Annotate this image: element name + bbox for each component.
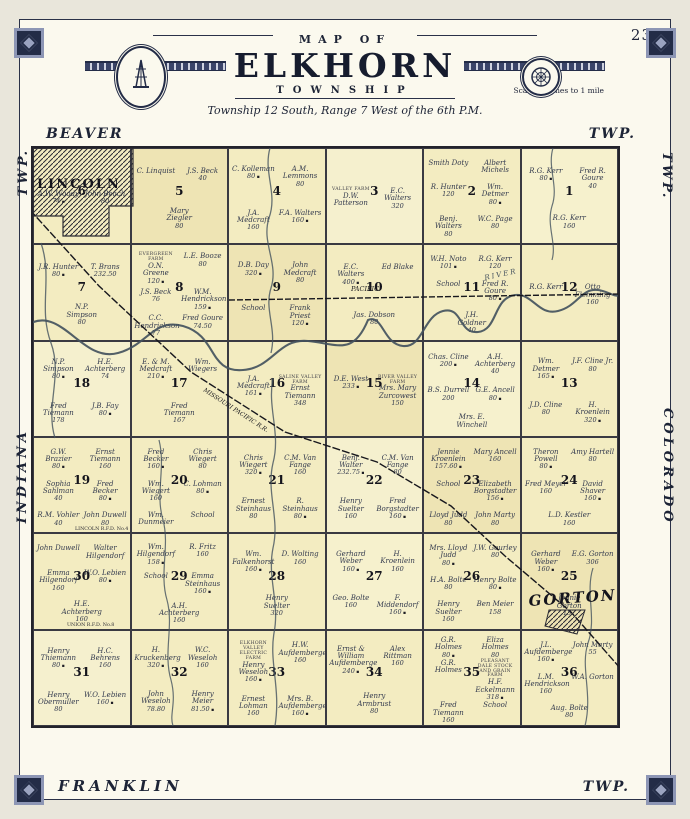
section-18: 18N.P. Simpson80H.E. Achterberg74Fred Ti… bbox=[33, 341, 131, 437]
parcel-acreage: 156 bbox=[474, 495, 517, 503]
owner-name: N.P. Simpson bbox=[37, 359, 80, 374]
parcel-acreage: 80 bbox=[474, 295, 517, 303]
parcel-list: R.G. KerrOtto Flemming160 bbox=[523, 251, 617, 338]
owner-name: Wm. Detmer bbox=[474, 184, 517, 199]
plat-map-page: 23 MAP OF ELKHORN TOW bbox=[0, 0, 690, 819]
owner-name: N.P. Simpson bbox=[60, 304, 103, 319]
owner-name: G.W. Brazier bbox=[37, 449, 80, 464]
parcel-acreage: 80 bbox=[524, 463, 567, 471]
parcel-list: Mrs. Lloyd Judd80J.W. Gourley80H.A. Bolt… bbox=[425, 540, 519, 627]
parcel: C. Linquist bbox=[134, 168, 177, 182]
parcel: F.A. Walters160 bbox=[279, 210, 322, 232]
parcel-acreage: 80 bbox=[474, 520, 517, 527]
parcel-list: Jennie Kroenlein157.60Mary Ancell160Scho… bbox=[425, 444, 519, 531]
parcel-list: J.A. Medcraft161SALINE VALLEY FARMErnst … bbox=[230, 348, 324, 435]
owner-name: H.C. Behrens bbox=[84, 648, 127, 663]
parcel-acreage: 158 bbox=[134, 559, 177, 567]
parcel-acreage: 80 bbox=[37, 463, 80, 471]
parcel-acreage: 80 bbox=[279, 277, 322, 284]
parcel-acreage: 80 bbox=[571, 456, 614, 463]
adjacent-township-indiana: INDIANA bbox=[15, 428, 30, 523]
parcel: C. Kolleman80 bbox=[232, 166, 275, 188]
parcel: Henry Suelter160 bbox=[427, 601, 470, 623]
parcel: Mrs. E. Winchell bbox=[450, 414, 493, 429]
section-15: 15D.E. West233RIVER VALLEY FARMMrs. Mary… bbox=[326, 341, 424, 437]
owner-name: J.H. Goldner bbox=[450, 312, 493, 327]
parcel-list: Chris Wiegert320C.M. Van Fange160Ernest … bbox=[230, 444, 324, 531]
section-number: 28 bbox=[268, 569, 285, 583]
owner-name: Benj. Walters bbox=[427, 216, 470, 231]
parcel-acreage: 80 bbox=[427, 520, 470, 527]
parcel-list: Wm. Detmer165J.F. Cline Jr.80J.D. Cline8… bbox=[523, 348, 617, 435]
owner-name: H. Kruckenberg bbox=[134, 647, 177, 662]
owner-name: Benj. Walter bbox=[329, 455, 372, 470]
parcel-acreage: 80 bbox=[353, 319, 396, 326]
parcel-acreage: 157.60 bbox=[427, 463, 470, 471]
owner-name: Henry Armbrust bbox=[353, 693, 396, 708]
parcel: Lloyd Judd80 bbox=[427, 512, 470, 526]
owner-name: Jennie Kroenlein bbox=[427, 449, 470, 464]
parcel-acreage: 80 bbox=[37, 706, 80, 713]
owner-name: D.W. Patterson bbox=[329, 193, 372, 208]
section-30: 30John DuwellWalter HilgendorfEmma Hilge… bbox=[33, 533, 131, 629]
owner-name: Ernest Steinhaus bbox=[232, 498, 275, 513]
section-20: 20Fred Becker160Chris Wiegert80Wm. Wiege… bbox=[131, 437, 229, 533]
parcel-acreage: 160 bbox=[376, 609, 419, 617]
parcel-list: John DuwellWalter HilgendorfEmma Hilgend… bbox=[35, 540, 129, 627]
owner-name: Mrs. E. Winchell bbox=[450, 414, 493, 429]
owner-name: Wm. Wiegers bbox=[181, 359, 224, 374]
owner-name: Henry Suelter bbox=[255, 595, 298, 610]
owner-name: E.C. Walters bbox=[329, 264, 372, 279]
parcel: John Weseloh78.80 bbox=[134, 691, 177, 713]
parcel: Chris Wiegert80 bbox=[181, 449, 224, 471]
parcel: D.B. Day320 bbox=[232, 262, 275, 284]
parcel-acreage: 80 bbox=[232, 513, 275, 520]
section-26: 26Mrs. Lloyd Judd80J.W. Gourley80H.A. Bo… bbox=[423, 533, 521, 629]
parcel-acreage: 80 bbox=[181, 261, 224, 268]
section-number: 26 bbox=[463, 569, 480, 583]
parcel-acreage: 160 bbox=[134, 495, 177, 502]
parcel-acreage: 80 bbox=[84, 495, 127, 503]
parcel: Amy Hartell80 bbox=[571, 449, 614, 471]
parcel-acreage: 120 bbox=[279, 320, 322, 328]
parcel-acreage: 200 bbox=[427, 395, 470, 402]
parcel-acreage: 120 bbox=[474, 263, 517, 270]
parcel: Mary Ancell160 bbox=[474, 449, 517, 471]
parcel: N.P. Simpson80 bbox=[60, 304, 103, 326]
owner-name: John Medcraft bbox=[279, 262, 322, 277]
section-number: 2 bbox=[468, 184, 476, 198]
parcel-acreage: 80 bbox=[60, 319, 103, 326]
section-12: 12R.G. KerrOtto Flemming160 bbox=[521, 244, 619, 340]
section-number: 3 bbox=[370, 184, 378, 198]
township-map: 6A.W. Woody74John Beach805C. LinquistJ.S… bbox=[33, 148, 618, 726]
parcel: Geo. Bolte160 bbox=[329, 595, 372, 617]
parcel-acreage: 80 bbox=[279, 513, 322, 521]
section-number: 14 bbox=[463, 376, 480, 390]
owner-name: H.F. Eckelmann bbox=[474, 679, 517, 694]
parcel-list: Gerhard Weber160H. Kroenlein160Geo. Bolt… bbox=[328, 540, 422, 627]
parcel-acreage: 40 bbox=[474, 368, 517, 375]
owner-name: Henry Suelter bbox=[427, 601, 470, 616]
parcel-acreage: 348 bbox=[279, 400, 322, 407]
parcel-list: E.C. Walters400Ed BlakeJas. Dobson80 bbox=[328, 251, 422, 338]
parcel: L.D. Kestler160 bbox=[548, 512, 591, 526]
parcel-acreage: 80 bbox=[524, 175, 567, 183]
owner-name: Albert Michels bbox=[474, 160, 517, 175]
owner-name: Fred Becker bbox=[134, 449, 177, 464]
parcel: F. Middendorf160 bbox=[376, 595, 419, 617]
parcel-acreage: 160 bbox=[158, 617, 201, 624]
owner-name: J.L. Aufdemberge bbox=[524, 642, 567, 657]
owner-name: Henry Meier bbox=[181, 691, 224, 706]
parcel: School bbox=[232, 305, 275, 327]
section-33: 33ELKHORN VALLEY ELECTRIC FARMHenry Wese… bbox=[228, 630, 326, 726]
section-36: 36J.L. Aufdemberge160John Marty55L.M. He… bbox=[521, 630, 619, 726]
section-number: 11 bbox=[463, 280, 480, 294]
section-8: 8EVERGREEN FARMO.N. Greene120L.E. Booze8… bbox=[131, 244, 229, 340]
section-number: 36 bbox=[561, 665, 578, 679]
section-number: 32 bbox=[171, 665, 188, 679]
section-13: 13Wm. Detmer165J.F. Cline Jr.80J.D. Clin… bbox=[521, 341, 619, 437]
section-2: 2Smith DotyAlbert MichelsR. Hunter120Wm.… bbox=[423, 148, 521, 244]
owner-name: Mrs. Lloyd Judd bbox=[427, 545, 470, 560]
section-1: 1R.G. Kerr80Fred R. Goure40R.G. Kerr160 bbox=[521, 148, 619, 244]
parcel-acreage: 80 bbox=[353, 708, 396, 715]
section-27: 27Gerhard Weber160H. Kroenlein160Geo. Bo… bbox=[326, 533, 424, 629]
owner-name: H. Kroenlein bbox=[376, 551, 419, 566]
parcel-acreage: 80 bbox=[571, 366, 614, 373]
parcel-acreage: 80 bbox=[474, 395, 517, 403]
parcel: Ernest Lohman160 bbox=[232, 696, 275, 718]
section-grid: 6A.W. Woody74John Beach805C. LinquistJ.S… bbox=[33, 148, 618, 726]
parcel: Walter Hilgendorf bbox=[84, 545, 127, 560]
section-number: 33 bbox=[268, 665, 285, 679]
parcel-acreage: 101 bbox=[427, 263, 470, 271]
parcel-acreage: 120 bbox=[427, 191, 470, 198]
parcel: J.W. Gourley80 bbox=[474, 545, 517, 567]
owner-name: Wm. Detmer bbox=[524, 358, 567, 373]
parcel-acreage: 80 bbox=[524, 409, 567, 416]
parcel-list: C. LinquistJ.S. Beck40Mary Ziegler80 bbox=[133, 155, 227, 242]
parcel: R.G. Kerr120 bbox=[474, 256, 517, 271]
parcel: Fred Tiemann178 bbox=[37, 403, 80, 425]
parcel: John Marty55 bbox=[571, 642, 614, 664]
parcel: J.R. Hunter80 bbox=[37, 264, 80, 279]
parcel: J.S. Beck76 bbox=[134, 289, 177, 311]
parcel-acreage: 77 bbox=[134, 330, 177, 337]
owner-name: C.C. Hendrickson bbox=[134, 315, 177, 330]
parcel: Fred Borgstadter160 bbox=[376, 498, 419, 520]
border-corner-ornament bbox=[14, 775, 44, 805]
parcel-list: Theron Powell80Amy Hartell80Fred Meyer16… bbox=[523, 444, 617, 531]
parcel-acreage: 80 bbox=[474, 652, 517, 659]
section-number: 1 bbox=[565, 184, 573, 198]
section-number: 23 bbox=[463, 473, 480, 487]
owner-name: A.H. Achterberg bbox=[474, 354, 517, 369]
parcel: Ben Meier158 bbox=[474, 601, 517, 623]
parcel-acreage: 40 bbox=[37, 520, 80, 527]
parcel: Jennie Kroenlein157.60 bbox=[427, 449, 470, 471]
section-16: 16J.A. Medcraft161SALINE VALLEY FARMErns… bbox=[228, 341, 326, 437]
section-number: 24 bbox=[561, 473, 578, 487]
parcel: Wm. Hilgendorf158 bbox=[134, 544, 177, 566]
section-number: 20 bbox=[171, 473, 188, 487]
parcel-list: Henry Thiemann80H.C. Behrens160Henry Obe… bbox=[35, 637, 129, 724]
parcel-acreage: 160 bbox=[329, 602, 372, 609]
parcel: Ernst Tiemann160 bbox=[84, 449, 127, 471]
seal-tower-ornament bbox=[116, 46, 166, 108]
parcel: John Duwell bbox=[37, 545, 80, 560]
section-number: 35 bbox=[463, 665, 480, 679]
owner-name: C.M. Van Fange bbox=[376, 455, 419, 470]
parcel: A.H. Achterberg40 bbox=[474, 354, 517, 376]
parcel: John Medcraft80 bbox=[279, 262, 322, 284]
parcel-acreage: 74.50 bbox=[181, 323, 224, 330]
section-number: 16 bbox=[268, 376, 285, 390]
parcel-acreage: 160 bbox=[181, 588, 224, 596]
legal-description: Township 12 South, Range 7 West of the 6… bbox=[20, 104, 670, 117]
section-14: 14Chas. Cline200A.H. Achterberg40B.S. Du… bbox=[423, 341, 521, 437]
adjacent-township-colorado: COLORADO bbox=[660, 408, 675, 526]
section-number: 9 bbox=[273, 280, 281, 294]
adjacent-township-beaver: BEAVER bbox=[46, 126, 124, 142]
parcel: Theron Powell80 bbox=[524, 449, 567, 471]
parcel: A.M. Lemmons80 bbox=[279, 166, 322, 188]
banner-arc-title: MAP OF bbox=[299, 33, 391, 46]
parcel-acreage: 40 bbox=[571, 183, 614, 190]
township-title: ELKHORN bbox=[234, 49, 457, 82]
adjacent-township-left-top: TWP. bbox=[16, 148, 31, 196]
parcel-acreage: 159 bbox=[181, 304, 224, 312]
owner-name: Fred Tiemann bbox=[427, 702, 470, 717]
parcel: Aug. Bolte80 bbox=[548, 705, 591, 719]
parcel-acreage: 160 bbox=[571, 495, 614, 503]
parcel-list: J.R. Hunter80T. Brans232.50N.P. Simpson8… bbox=[35, 251, 129, 338]
parcel-acreage: 157 bbox=[548, 610, 591, 617]
section-number: 13 bbox=[561, 376, 578, 390]
section-number: 22 bbox=[366, 473, 383, 487]
parcel-acreage: 160 bbox=[279, 710, 322, 718]
parcel-acreage: 40 bbox=[450, 327, 493, 334]
banner-subrule bbox=[235, 98, 455, 99]
section-number: 27 bbox=[366, 569, 383, 583]
adjacent-township-bottom-right: TWP. bbox=[583, 779, 630, 795]
owner-name: Frank Priest bbox=[279, 305, 322, 320]
parcel-acreage: 160 bbox=[524, 488, 567, 495]
section-21: 21Chris Wiegert320C.M. Van Fange160Ernes… bbox=[228, 437, 326, 533]
parcel-acreage: 160 bbox=[279, 217, 322, 225]
parcel-list: D.E. West233RIVER VALLEY FARMMrs. Mary Z… bbox=[328, 348, 422, 435]
owner-name: A.M. Lemmons bbox=[279, 166, 322, 181]
owner-name: H.W. Aufdemberge bbox=[279, 642, 322, 657]
parcel-acreage: 160 bbox=[134, 463, 177, 471]
parcel: Jennie Gorton157 bbox=[548, 595, 591, 617]
parcel: Henry Suelter160 bbox=[329, 498, 372, 520]
section-number: 19 bbox=[73, 473, 90, 487]
parcel: J.L. Aufdemberge160 bbox=[524, 642, 567, 664]
parcel: G.W. Brazier80 bbox=[37, 449, 80, 471]
owner-name: Smith Doty bbox=[427, 160, 470, 167]
owner-name: H.E. Achterberg bbox=[60, 601, 103, 616]
parcel-list: Fred Becker160Chris Wiegert80Wm. Wiegert… bbox=[133, 444, 227, 531]
owner-name: Eliza Holmes bbox=[474, 637, 517, 652]
parcel-acreage: 160 bbox=[571, 299, 614, 306]
parcel-list: W.H. Noto101R.G. Kerr120SchoolFred R. Go… bbox=[425, 251, 519, 338]
parcel-list: H. Kruckenberg320W.C. Weseloh160John Wes… bbox=[133, 637, 227, 724]
parcel: Frank Priest120 bbox=[279, 305, 322, 327]
owner-name: Theron Powell bbox=[524, 449, 567, 464]
owner-name: E. & M. Medcraft bbox=[134, 359, 177, 374]
owner-name: W.M. Hendrickson bbox=[181, 289, 224, 304]
owner-name: Mrs. B. Aufdemberge bbox=[279, 696, 322, 711]
section-28: 28Wm. Falkenhorst160D. Wolting160Henry S… bbox=[228, 533, 326, 629]
parcel-acreage: 160 bbox=[232, 224, 275, 231]
section-25: 25Gerhard Weber160E.G. Gorton306Jennie G… bbox=[521, 533, 619, 629]
parcel: John Marty80 bbox=[474, 512, 517, 526]
section-number: 7 bbox=[78, 280, 86, 294]
border-corner-ornament bbox=[646, 775, 676, 805]
parcel: Fred Goure74.50 bbox=[181, 315, 224, 337]
owner-name: John Duwell bbox=[37, 545, 80, 552]
owner-name: W.C. Weseloh bbox=[181, 647, 224, 662]
section-19: 19G.W. Brazier80Ernst Tiemann160Sophia S… bbox=[33, 437, 131, 533]
section-number: 15 bbox=[366, 376, 383, 390]
owner-name: Henry Suelter bbox=[329, 498, 372, 513]
parcel-acreage: 80 bbox=[37, 271, 80, 279]
owner-name: Wm. Falkenhorst bbox=[232, 551, 275, 566]
parcel: R. Fritz160 bbox=[181, 544, 224, 566]
parcel: W.O. Lebien160 bbox=[84, 692, 127, 714]
border-corner-ornament bbox=[14, 28, 44, 58]
parcel: T. Brans232.50 bbox=[84, 264, 127, 279]
section-number: 30 bbox=[73, 569, 90, 583]
parcel-acreage: 80 bbox=[474, 223, 517, 230]
parcel: J.S. Beck40 bbox=[181, 168, 224, 182]
owner-name: C.M. Van Fange bbox=[279, 455, 322, 470]
parcel-list: Gerhard Weber160E.G. Gorton306Jennie Gor… bbox=[523, 540, 617, 627]
parcel-acreage: 80 bbox=[474, 552, 517, 559]
owner-name: Ernst Tiemann bbox=[84, 449, 127, 464]
parcel: Ernest Steinhaus80 bbox=[232, 498, 275, 520]
parcel: J.D. Cline80 bbox=[524, 402, 567, 424]
section-34: 34Ernst & William Aufdemberge240Alex Rit… bbox=[326, 630, 424, 726]
adjacent-township-right-top: TWP. bbox=[659, 152, 674, 200]
section-number: 29 bbox=[171, 569, 188, 583]
parcel-list: EVERGREEN FARMO.N. Greene120L.E. Booze80… bbox=[133, 251, 227, 338]
parcel: A.H. Achterberg160 bbox=[158, 603, 201, 625]
parcel-acreage: 80 bbox=[474, 584, 517, 592]
parcel-acreage: 178 bbox=[37, 417, 80, 424]
parcel-acreage: 80 bbox=[427, 560, 470, 568]
owner-name: School bbox=[232, 305, 275, 312]
parcel: H.E. Achterberg160 bbox=[60, 601, 103, 623]
parcel: School bbox=[474, 702, 517, 724]
parcel-acreage: 160 bbox=[60, 616, 103, 623]
owner-name: G.R. Holmes bbox=[427, 637, 470, 652]
owner-name: Chris Wiegert bbox=[232, 455, 275, 470]
parcel-list: Wm. Hilgendorf158R. Fritz160SchoolEmma S… bbox=[133, 540, 227, 627]
owner-name: Henry Obermuller bbox=[37, 692, 80, 707]
parcel-list: Wm. Falkenhorst160D. Wolting160Henry Sue… bbox=[230, 540, 324, 627]
section-number: 25 bbox=[561, 569, 578, 583]
parcel-acreage: 160 bbox=[376, 513, 419, 521]
parcel-acreage: 160 bbox=[474, 456, 517, 463]
owner-name: Wm. Dunmeier bbox=[134, 512, 177, 527]
owner-name: Alex Rittman bbox=[376, 646, 419, 661]
parcel: L.E. Booze80 bbox=[181, 253, 224, 285]
parcel: Albert Michels bbox=[474, 160, 517, 175]
section-35: 35G.R. Holmes80Eliza Holmes80G.R. Holmes… bbox=[423, 630, 521, 726]
parcel: Henry Obermuller80 bbox=[37, 692, 80, 714]
parcel: Wm. Detmer80 bbox=[474, 184, 517, 206]
owner-name: Fred Tiemann bbox=[37, 403, 80, 418]
section-number: 21 bbox=[268, 473, 285, 487]
parcel-acreage: 76 bbox=[134, 296, 177, 303]
parcel-acreage: 40 bbox=[181, 175, 224, 182]
section-number: 8 bbox=[175, 280, 183, 294]
owner-name: Walter Hilgendorf bbox=[84, 545, 127, 560]
parcel: John Beach80 bbox=[84, 191, 127, 206]
parcel-acreage: 306 bbox=[571, 559, 614, 566]
parcel-acreage: 80 bbox=[548, 712, 591, 719]
parcel-acreage: 80 bbox=[232, 173, 275, 181]
owner-name: John Weseloh bbox=[134, 691, 177, 706]
parcel-acreage: 320 bbox=[376, 203, 419, 210]
parcel-list: E. & M. Medcraft210Wm. WiegersFred Tiema… bbox=[133, 348, 227, 435]
parcel-acreage: 160 bbox=[524, 688, 567, 695]
parcel: W.C. Page80 bbox=[474, 216, 517, 238]
parcel: R.M. Vohler40 bbox=[37, 512, 80, 526]
section-5: 5C. LinquistJ.S. Beck40Mary Ziegler80 bbox=[131, 148, 229, 244]
parcel-acreage: 161 bbox=[232, 390, 275, 398]
section-number: 31 bbox=[73, 665, 90, 679]
parcel-list: C. Kolleman80A.M. Lemmons80J.A. Medcraft… bbox=[230, 155, 324, 242]
owner-name: School bbox=[181, 512, 224, 519]
parcel: Fred R. Goure40 bbox=[571, 168, 614, 190]
parcel: Mrs. B. Aufdemberge160 bbox=[279, 696, 322, 718]
parcel-list: Chas. Cline200A.H. Achterberg40B.S. Durr… bbox=[425, 348, 519, 435]
section-22: 22Benj. Walter232.75C.M. Van Fange80Henr… bbox=[326, 437, 424, 533]
parcel-acreage: 55 bbox=[571, 649, 614, 656]
parcel-acreage: 78.80 bbox=[134, 706, 177, 713]
parcel-acreage: 160 bbox=[548, 223, 591, 230]
parcel-acreage: 320 bbox=[232, 270, 275, 278]
section-23: 23Jennie Kroenlein157.60Mary Ancell160Sc… bbox=[423, 437, 521, 533]
section-number: 10 bbox=[366, 280, 383, 294]
parcel: W.H. Noto101 bbox=[427, 256, 470, 271]
parcel: Mrs. Lloyd Judd80 bbox=[427, 545, 470, 567]
parcel: R.G. Kerr160 bbox=[548, 215, 591, 229]
section-number: 4 bbox=[273, 184, 281, 198]
owner-name: Henry Thiemann bbox=[37, 648, 80, 663]
owner-name: J.A. Medcraft bbox=[232, 210, 275, 225]
parcel-acreage: 81.50 bbox=[181, 706, 224, 714]
parcel-acreage: 80 bbox=[84, 520, 127, 527]
seal-rosette-ornament bbox=[522, 58, 560, 96]
parcel: G.R. Holmes80 bbox=[427, 637, 470, 659]
parcel-acreage: 320 bbox=[255, 610, 298, 617]
parcel: R.G. Kerr80 bbox=[524, 168, 567, 190]
parcel-acreage: 160 bbox=[524, 656, 567, 664]
parcel-acreage: 80 bbox=[279, 181, 322, 188]
owner-name: Fred Tiemann bbox=[158, 403, 201, 418]
parcel: Chas. Cline200 bbox=[427, 354, 470, 376]
parcel-acreage: 120 bbox=[134, 278, 177, 286]
owner-name: Ed Blake bbox=[376, 264, 419, 271]
parcel: Henry Meier81.50 bbox=[181, 691, 224, 713]
